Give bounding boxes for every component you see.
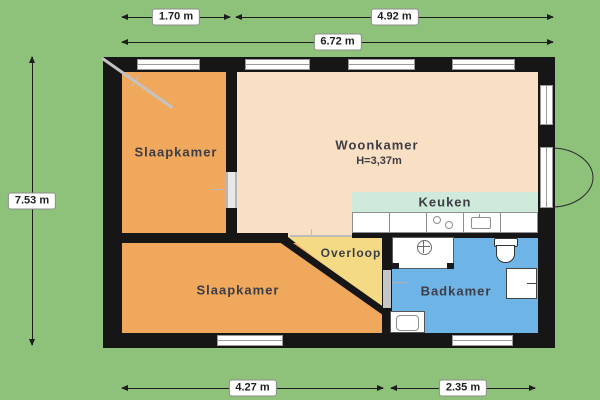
arrow-down-icon xyxy=(29,339,35,346)
shower-drain-icon xyxy=(417,240,432,255)
arrow-left-icon xyxy=(121,14,128,20)
floor-plan-image: 1.70 m 4.92 m 6.72 m 7.53 m 4.27 m 2.35 … xyxy=(0,0,600,400)
label-slaapkamer-bottom: Slaapkamer xyxy=(197,283,280,298)
kitchen-cabinet xyxy=(501,213,537,232)
door-tick xyxy=(392,282,408,283)
dimension-label: 2.35 m xyxy=(439,380,487,397)
arrow-left-icon xyxy=(235,14,242,20)
label-keuken: Keuken xyxy=(419,195,472,210)
stove xyxy=(427,213,464,232)
label-woonkamer: Woonkamer xyxy=(335,138,418,153)
burner-icon xyxy=(445,221,453,229)
label-woonkamer-height: H=3,37m xyxy=(356,155,402,167)
dimension-left: 7.53 m xyxy=(27,57,38,345)
window-top-3 xyxy=(348,59,415,70)
laundry-sink xyxy=(390,311,425,333)
passage-tick xyxy=(311,229,312,237)
kitchen-counter xyxy=(352,212,538,233)
label-overloop: Overloop xyxy=(321,246,382,260)
arrow-left-icon xyxy=(390,385,397,391)
passage-living-hall xyxy=(290,235,352,237)
dimension-label: 6.72 m xyxy=(313,34,361,51)
arrow-right-icon xyxy=(224,14,231,20)
door-tick xyxy=(211,189,227,190)
arrow-left-icon xyxy=(121,39,128,45)
shower-hinge xyxy=(392,263,399,269)
dimension-label: 7.53 m xyxy=(8,193,56,210)
dimension-top-total: 6.72 m xyxy=(122,37,553,48)
window-top-1 xyxy=(137,59,200,70)
floor-plan: Slaapkamer Woonkamer H=3,37m Keuken Over… xyxy=(103,57,555,348)
arrow-right-icon xyxy=(377,385,384,391)
dimension-label: 4.27 m xyxy=(228,380,276,397)
label-slaapkamer-top: Slaapkamer xyxy=(135,145,218,160)
wall-bedrooms xyxy=(103,233,288,243)
arrow-up-icon xyxy=(29,56,35,63)
window-right xyxy=(540,85,553,125)
dimension-label: 4.92 m xyxy=(370,9,418,26)
washbasin xyxy=(506,268,537,299)
door-bedroom-top xyxy=(226,172,237,208)
door-bathroom xyxy=(383,270,391,308)
label-badkamer: Badkamer xyxy=(421,284,492,299)
kitchen-cabinet xyxy=(390,213,427,232)
kitchen-cabinet xyxy=(353,213,390,232)
sink-icon xyxy=(471,217,491,229)
kitchen-sink xyxy=(464,213,501,232)
window-bottom-bathroom xyxy=(452,335,513,346)
wall-bedroom-living xyxy=(226,72,237,243)
window-bottom-bedroom xyxy=(217,335,283,346)
shower xyxy=(392,237,454,269)
laundry-bowl-icon xyxy=(396,315,419,331)
window-top-4 xyxy=(452,59,515,70)
toilet xyxy=(494,238,518,264)
dimension-bottom-right: 2.35 m xyxy=(391,383,535,394)
french-doors-swing-icon xyxy=(553,147,597,209)
dimension-label: 1.70 m xyxy=(152,9,200,26)
window-top-2 xyxy=(245,59,310,70)
dimension-top-right: 4.92 m xyxy=(236,12,553,23)
shower-hinge xyxy=(447,263,454,269)
toilet-bowl xyxy=(496,245,515,263)
arrow-left-icon xyxy=(121,385,128,391)
dimension-top-left: 1.70 m xyxy=(122,12,230,23)
burner-icon xyxy=(433,216,441,224)
arrow-right-icon xyxy=(547,14,554,20)
french-doors xyxy=(540,147,553,208)
arrow-right-icon xyxy=(547,39,554,45)
dimension-bottom-left: 4.27 m xyxy=(122,383,383,394)
arrow-right-icon xyxy=(529,385,536,391)
